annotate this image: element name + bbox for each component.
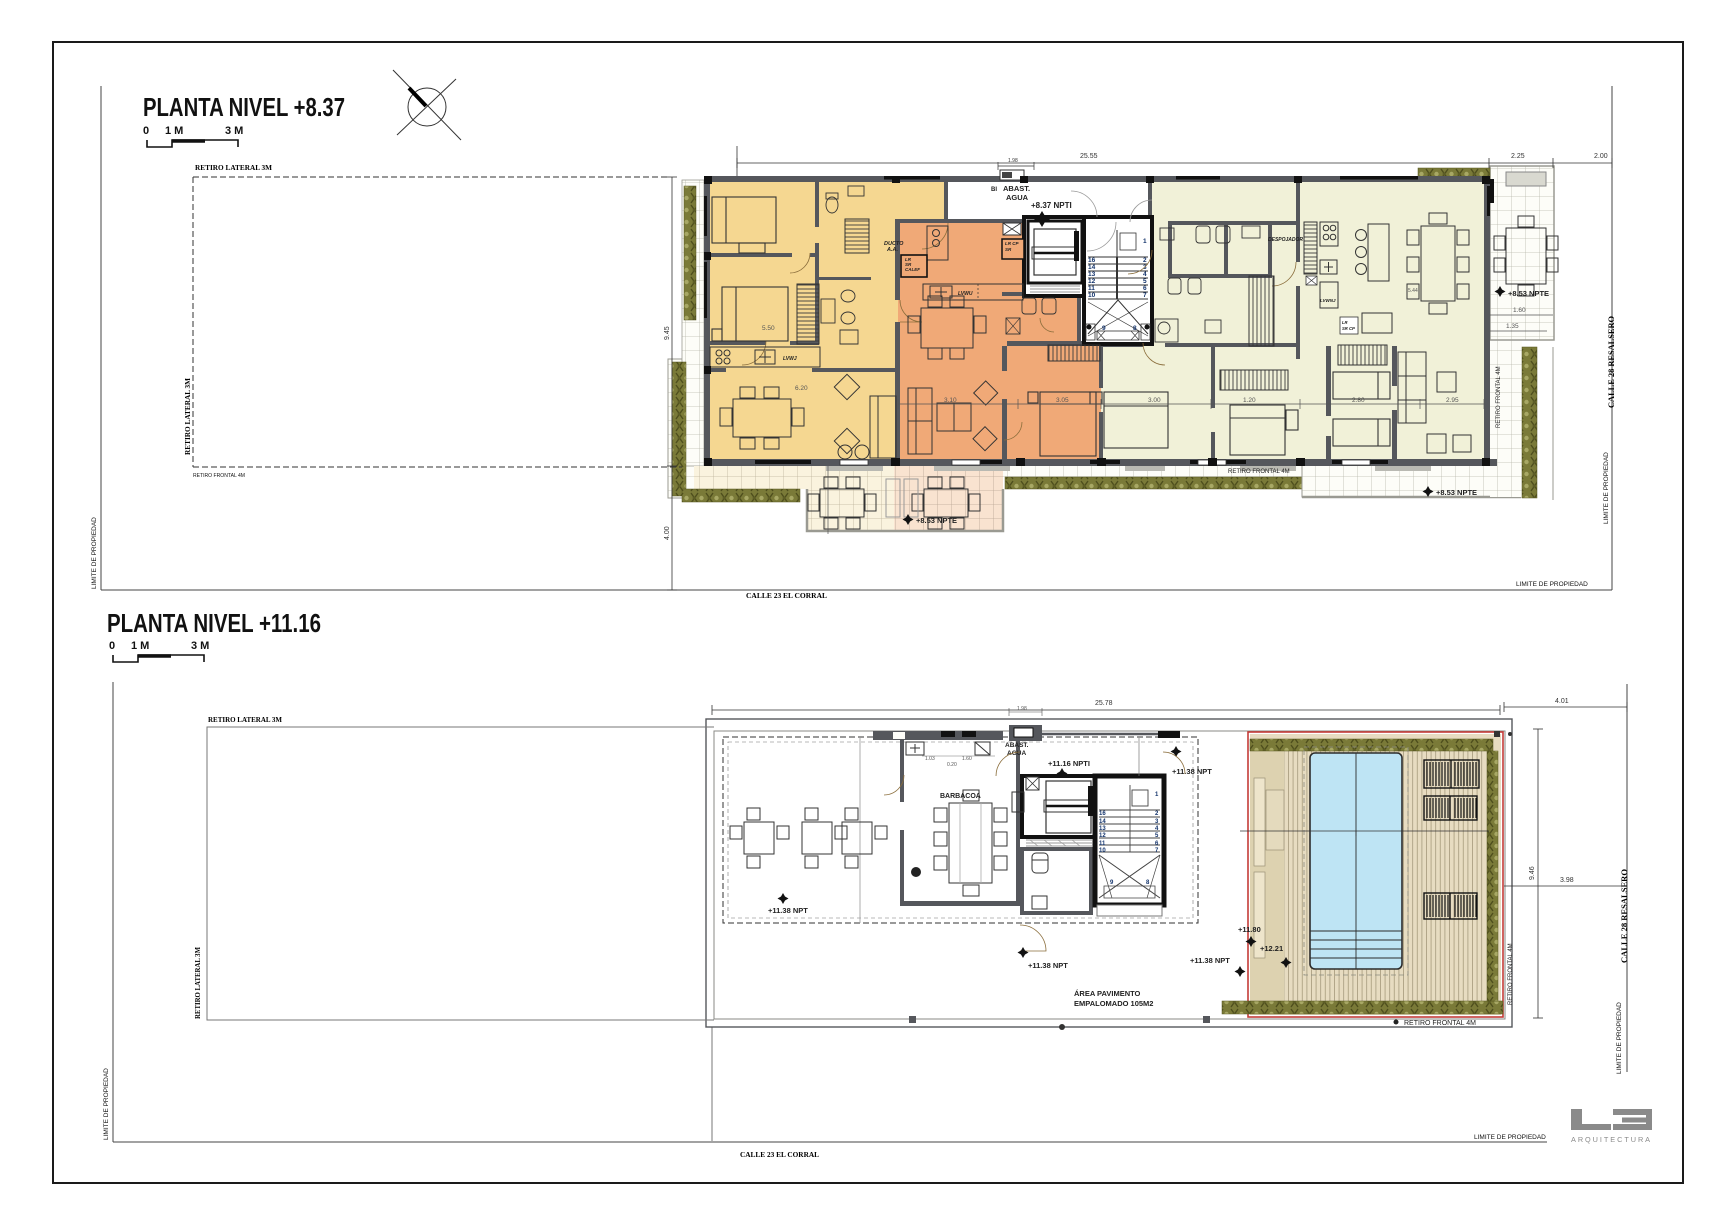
svg-text:4.00: 4.00 [664,526,671,540]
svg-text:+11.16 NPTI: +11.16 NPTI [1048,759,1090,768]
svg-text:RETIRO LATERAL 3M: RETIRO LATERAL 3M [184,378,192,455]
svg-text:3.98: 3.98 [1560,877,1574,884]
svg-text:14: 14 [1088,264,1096,271]
svg-text:+11.38 NPT: +11.38 NPT [1190,956,1230,965]
svg-text:+11.38 NPT: +11.38 NPT [1028,961,1068,970]
svg-text:1.60: 1.60 [1513,307,1526,314]
svg-text:16: 16 [1088,257,1096,264]
svg-text:1: 1 [1143,238,1147,245]
svg-text:+11.38 NPT: +11.38 NPT [768,906,808,915]
svg-text:0: 0 [143,125,149,137]
svg-text:2.80: 2.80 [1352,397,1365,404]
svg-text:3.00: 3.00 [1148,397,1161,404]
svg-text:9.46: 9.46 [1529,866,1536,880]
svg-text:6.20: 6.20 [795,385,808,392]
svg-text:+8.53 NPTE: +8.53 NPTE [916,516,957,525]
svg-text:2: 2 [1143,257,1147,264]
svg-text:+12.21: +12.21 [1260,944,1283,953]
svg-text:CALLE 23 EL CORRAL: CALLE 23 EL CORRAL [746,592,827,600]
svg-text:DESPOJADOR: DESPOJADOR [1268,237,1303,243]
svg-text:RETIRO LATERAL 3M: RETIRO LATERAL 3M [195,164,272,172]
svg-text:16: 16 [1099,811,1106,817]
svg-text:LIMITE DE PROPIEDAD: LIMITE DE PROPIEDAD [103,1068,110,1140]
svg-text:13: 13 [1099,826,1106,832]
svg-text:+11.38 NPT: +11.38 NPT [1172,767,1212,776]
svg-text:EMPALOMADO 105M2: EMPALOMADO 105M2 [1074,999,1153,1008]
svg-text:+8.53 NPTE: +8.53 NPTE [1436,488,1477,497]
svg-text:LR CP: LR CP [1005,241,1019,246]
svg-text:+8.37 NPTI: +8.37 NPTI [1031,201,1072,210]
svg-text:RETIRO FRONTAL 4M: RETIRO FRONTAL 4M [1496,366,1502,428]
svg-text:3.10: 3.10 [944,397,957,404]
svg-text:RETIRO LATERAL 3M: RETIRO LATERAL 3M [194,947,202,1019]
svg-text:7: 7 [1143,292,1147,299]
svg-text:9: 9 [1102,325,1106,332]
svg-text:CALEF: CALEF [905,267,920,272]
svg-text:11: 11 [1099,841,1106,847]
svg-text:RETIRO FRONTAL 4M: RETIRO FRONTAL 4M [1228,469,1290,475]
svg-text:1 M: 1 M [165,125,183,137]
svg-text:LIMITE DE PROPIEDAD: LIMITE DE PROPIEDAD [1516,581,1588,588]
svg-text:1 M: 1 M [131,640,149,652]
svg-text:AGUA: AGUA [1007,750,1026,757]
svg-text:5: 5 [1143,278,1147,285]
svg-text:CALLE 23 EL CORRAL: CALLE 23 EL CORRAL [740,1151,819,1159]
svg-text:6: 6 [1143,285,1147,292]
svg-text:RETIRO FRONTAL 4M: RETIRO FRONTAL 4M [193,473,245,479]
svg-text:1.98: 1.98 [1017,706,1027,712]
svg-text:5.50: 5.50 [762,325,775,332]
svg-text:0: 0 [109,640,115,652]
svg-text:5.44: 5.44 [1408,288,1418,294]
svg-text:SR: SR [1005,247,1012,252]
svg-text:4: 4 [1143,271,1147,278]
svg-text:AGUA: AGUA [1006,193,1029,202]
svg-text:2.00: 2.00 [1594,153,1608,160]
svg-text:1.03: 1.03 [925,756,935,762]
svg-text:25.55: 25.55 [1080,153,1098,160]
svg-text:12: 12 [1099,833,1106,839]
svg-text:A.A.: A.A. [886,247,898,253]
svg-text:LIMITE DE PROPIEDAD: LIMITE DE PROPIEDAD [1603,452,1610,524]
svg-text:10: 10 [1088,292,1096,299]
svg-text:0.20: 0.20 [947,762,957,768]
svg-text:LIMITE DE PROPIEDAD: LIMITE DE PROPIEDAD [91,517,98,589]
svg-text:1.35: 1.35 [1506,323,1519,330]
svg-text:LIMITE DE PROPIEDAD: LIMITE DE PROPIEDAD [1474,1134,1546,1141]
svg-text:11: 11 [1088,285,1095,292]
svg-text:LIMITE DE PROPIEDAD: LIMITE DE PROPIEDAD [1616,1002,1623,1074]
svg-text:ABAST.: ABAST. [1003,184,1030,193]
svg-text:2.25: 2.25 [1511,153,1525,160]
svg-text:25.78: 25.78 [1095,700,1113,707]
svg-text:12: 12 [1088,278,1096,285]
svg-text:CALLE 28 RESALSERO: CALLE 28 RESALSERO [1619,869,1629,963]
svg-text:RETIRO FRONTAL 4M: RETIRO FRONTAL 4M [1508,943,1514,1005]
svg-text:PLANTA NIVEL +8.37: PLANTA NIVEL +8.37 [143,92,345,122]
svg-text:8: 8 [1133,325,1137,332]
svg-text:LVWNJ: LVWNJ [1320,298,1336,303]
svg-text:BI: BI [991,187,997,193]
svg-text:RETIRO LATERAL 3M: RETIRO LATERAL 3M [208,716,282,724]
svg-text:ARQUITECTURA: ARQUITECTURA [1571,1135,1652,1144]
svg-text:10: 10 [1099,848,1106,854]
svg-text:1.20: 1.20 [1243,397,1256,404]
svg-text:3.05: 3.05 [1056,397,1069,404]
svg-text:+11.80: +11.80 [1238,925,1261,934]
svg-text:3 M: 3 M [191,640,209,652]
svg-text:13: 13 [1088,271,1096,278]
svg-text:LR: LR [1342,320,1348,325]
svg-text:BARBACOA: BARBACOA [940,793,981,800]
svg-text:SR CP: SR CP [1342,326,1355,331]
svg-text:+8.53 NPTE: +8.53 NPTE [1508,289,1549,298]
svg-text:ABAST.: ABAST. [1005,742,1029,749]
svg-text:9.45: 9.45 [664,326,671,340]
svg-text:CALLE 28 RESALSERO: CALLE 28 RESALSERO [1606,316,1616,408]
svg-text:RETIRO FRONTAL 4M: RETIRO FRONTAL 4M [1404,1020,1476,1027]
svg-text:4.01: 4.01 [1555,698,1569,705]
svg-text:PLANTA NIVEL +11.16: PLANTA NIVEL +11.16 [107,608,321,638]
svg-text:14: 14 [1099,819,1106,825]
svg-text:3 M: 3 M [225,125,243,137]
svg-text:2.95: 2.95 [1446,397,1459,404]
svg-text:1.60: 1.60 [962,756,972,762]
svg-text:ÁREA PAVIMENTO: ÁREA PAVIMENTO [1074,989,1141,998]
svg-text:LVWJ: LVWJ [783,356,797,362]
